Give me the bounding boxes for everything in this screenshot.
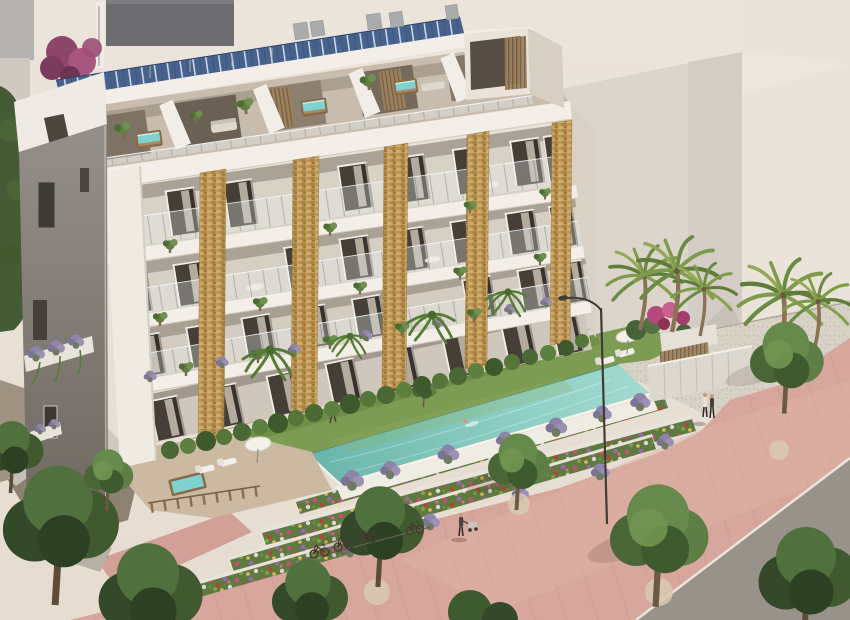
stone-pier	[382, 143, 408, 391]
light-gray-wall	[0, 0, 34, 60]
tower-window	[38, 182, 55, 228]
dark-gray-block	[106, 0, 234, 46]
white-corner-chimney	[96, 2, 104, 68]
stone-pier	[198, 169, 226, 440]
stone-pier	[291, 156, 319, 415]
render-canvas: Aerial architectural rendering of a mode…	[0, 0, 850, 620]
left-foliage-clump	[0, 244, 21, 266]
architectural-render: Aerial architectural rendering of a mode…	[0, 0, 850, 620]
tree-pit	[769, 440, 789, 460]
stone-pier	[465, 131, 489, 369]
tower-window	[33, 300, 47, 340]
stone-pier	[550, 120, 572, 345]
wing-wood-slats	[504, 36, 527, 90]
stroller	[468, 522, 477, 528]
dark-block-top	[106, 0, 234, 4]
tower-window	[80, 168, 89, 192]
